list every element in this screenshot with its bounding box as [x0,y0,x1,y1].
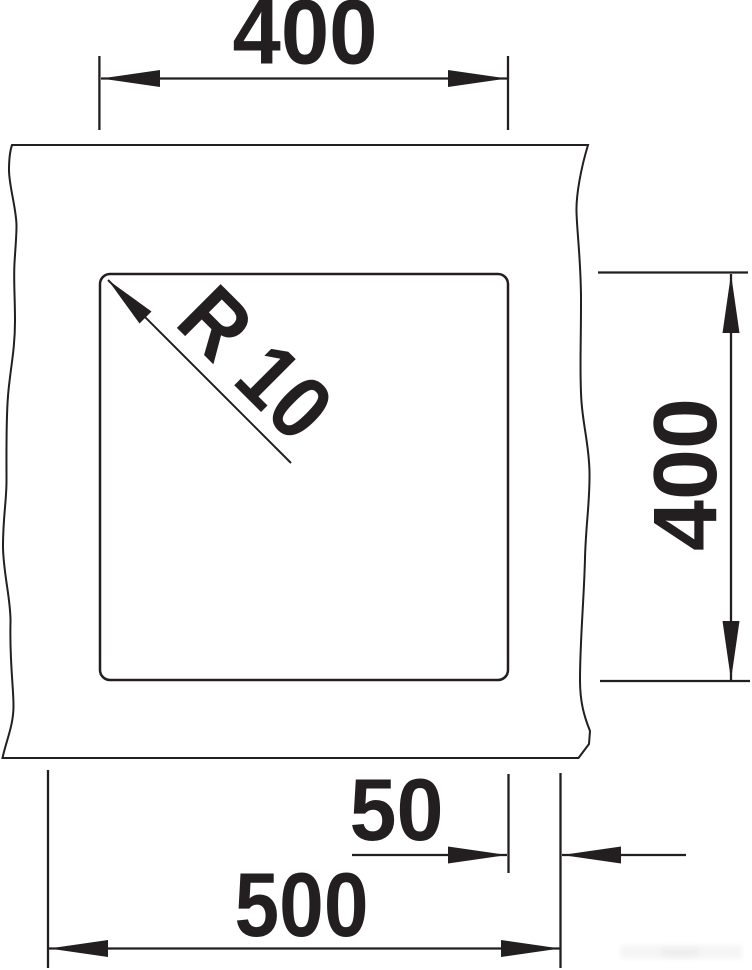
svg-text:50: 50 [350,760,444,859]
svg-text:R 10: R 10 [159,267,351,459]
svg-text:400: 400 [233,0,378,84]
svg-text:500: 500 [235,855,369,956]
svg-text:400: 400 [636,398,736,551]
